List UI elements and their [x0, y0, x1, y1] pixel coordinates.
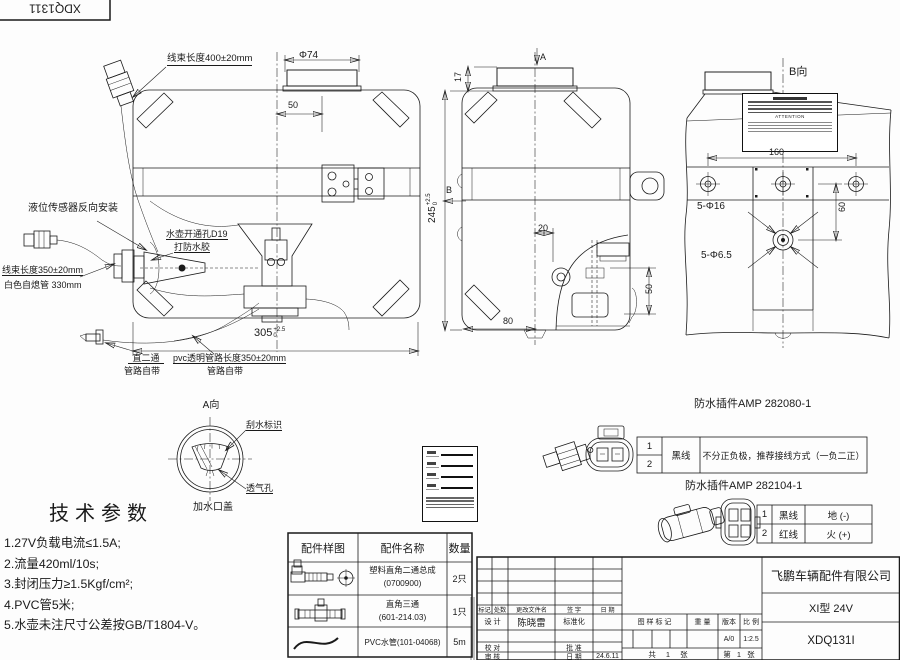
- a-view-title: A向: [196, 400, 226, 411]
- rev-header-sign: 签 字: [555, 604, 593, 614]
- connector2-front-view: [716, 499, 760, 545]
- parts-row2-name2: (601-214.03): [358, 611, 447, 623]
- date-value: 24.6.11: [593, 652, 622, 660]
- standardization-label: 标准化: [555, 614, 593, 630]
- rev-header-date: 日 期: [593, 604, 622, 614]
- connector1-pin2: 2: [637, 455, 662, 473]
- drawing-sheet: ATTENTION XDQ1311 线束长度400±20mm Φ74 50 液位…: [0, 0, 900, 660]
- total-sheets: 共 1 张: [622, 648, 718, 660]
- dim-phi74: Φ74: [299, 50, 318, 61]
- dim-17: 17: [453, 65, 463, 89]
- version-value: A/0: [718, 630, 740, 648]
- parts-header-sample: 配件样图: [288, 533, 358, 562]
- parts-row2-name1: 直角三通: [358, 598, 447, 610]
- dim-50-side: 50: [644, 278, 654, 300]
- parts-row2-qty: 1只: [447, 595, 472, 627]
- connector1-title: 防水插件AMP 282080-1: [694, 398, 811, 410]
- pvc-pipe-note-line2: 管路自带: [207, 366, 243, 376]
- dim-60: 60: [837, 196, 847, 218]
- connector2-row2-pin: 2: [757, 524, 772, 543]
- tank-hole-note-line1: 水壶开通孔D19: [166, 229, 228, 240]
- wiper-mark-label: 刮水标识: [246, 420, 282, 431]
- holes-5-phi6-5: 5-Φ6.5: [701, 250, 732, 261]
- parts-row1-name2: (0700900): [358, 577, 447, 589]
- pvc-pipe-note-line1: pvc透明管路长度350±20mm: [173, 353, 286, 364]
- sensor-plug: [102, 59, 137, 107]
- tech-param-item: 3.封闭压力≥1.5Kgf/cm²;: [4, 574, 206, 595]
- pvc-hose-icon: [294, 638, 338, 649]
- tech-params-list: 1.27V负载电流≤1.5A; 2.流量420ml/10s; 3.封闭压力≥1.…: [4, 533, 206, 636]
- dim-20: 20: [538, 223, 548, 233]
- parts-row3-qty: 5m: [447, 627, 472, 657]
- connector2-row2-role: 火 (+): [805, 524, 872, 543]
- warning-plate: ATTENTION: [742, 93, 838, 152]
- tech-param-item: 5.水壶未注尺寸公差按GB/T1804-V。: [4, 615, 206, 636]
- spec-sticker: [422, 446, 478, 522]
- connector1-side-view: [542, 437, 596, 475]
- dim-80: 80: [503, 316, 513, 326]
- parts-header-qty: 数量: [447, 533, 472, 562]
- connector2-row2-wire: 红线: [772, 524, 805, 543]
- section-label-a: A: [540, 52, 546, 62]
- rev-header-count: 处数: [492, 604, 508, 614]
- design-label: 设 计: [477, 614, 508, 630]
- sheet-code-top: XDQ1311: [24, 1, 86, 14]
- rev-header-file: 更改文件名: [508, 604, 555, 614]
- sheet-number: 第 1 张: [718, 648, 762, 660]
- weight-label: 重 量: [687, 614, 718, 630]
- tank-hole-note-line2: 打防水胶: [174, 242, 210, 253]
- tee-fitting-icon: [295, 599, 345, 621]
- white-tube-note: 白色自熄管 330mm: [4, 280, 82, 290]
- connector1-note: 不分正负极，推荐接线方式（一负二正）: [700, 437, 867, 473]
- connector1-wire: 黑线: [662, 437, 700, 473]
- tech-param-item: 2.流量420ml/10s;: [4, 554, 206, 575]
- drawing-code: XDQ131I: [762, 622, 900, 660]
- stamp-label: 图 样 标 记: [622, 614, 687, 630]
- tech-params-title: 技术参数: [49, 503, 153, 525]
- connector2-row1-wire: 黑线: [772, 505, 805, 524]
- connector1-pin1: 1: [637, 437, 662, 455]
- section-label-b: B: [446, 185, 452, 195]
- connector2-row1-pin: 1: [757, 505, 772, 524]
- designer-name: 陈晓雷: [508, 614, 555, 630]
- connector1-front-view: [586, 426, 633, 471]
- audit-label: 审 核: [477, 652, 508, 660]
- a-view-drawing: [168, 417, 252, 501]
- elbow-note-line2: 管路自带: [124, 366, 160, 376]
- elbow-fitting-icon: [291, 560, 355, 587]
- tech-param-item: 4.PVC管5米;: [4, 595, 206, 616]
- plate-title-line: [773, 97, 807, 100]
- parts-row3-name: PVC水管(101-04068): [358, 627, 447, 657]
- dim-50-front: 50: [288, 100, 298, 110]
- scale-label: 比 例: [740, 614, 762, 630]
- elbow-note-line1: 直二通: [128, 353, 164, 364]
- dim-245: 245+2.50: [422, 173, 440, 223]
- harness-length-left-note: 线束长度350±20mm: [2, 265, 83, 276]
- product-model: XI型 24V: [762, 593, 900, 622]
- connector2-row1-role: 地 (-): [805, 505, 872, 524]
- tech-param-item: 1.27V负载电流≤1.5A;: [4, 533, 206, 554]
- connector2-title: 防水插件AMP 282104-1: [685, 480, 802, 492]
- connector2-side-view: [654, 496, 726, 543]
- parts-row1-name1: 塑料直角二通总成: [358, 564, 447, 576]
- dim-160: 160: [769, 147, 784, 157]
- holes-5-phi16: 5-Φ16: [697, 201, 725, 212]
- rev-header-mark: 标记: [477, 604, 492, 614]
- date-label: 日 期: [555, 652, 593, 660]
- level-sensor-note: 液位传感器反向安装: [28, 203, 118, 214]
- version-label: 版本: [718, 614, 740, 630]
- parts-header-name: 配件名称: [358, 533, 447, 562]
- company-name: 飞鹏车辆配件有限公司: [762, 557, 900, 593]
- b-view-title: B向: [789, 66, 807, 78]
- plate-attention-text: ATTENTION: [748, 115, 832, 120]
- vent-hole-label: 透气孔: [246, 483, 273, 494]
- scale-value: 1:2.5: [740, 630, 762, 648]
- side-view-drawing: [444, 48, 664, 345]
- harness-length-top-note: 线束长度400±20mm: [167, 54, 252, 66]
- parts-row1-qty: 2只: [447, 562, 472, 595]
- filler-cap-label: 加水口盖: [193, 502, 233, 513]
- dim-305: 305 +2.50: [254, 327, 285, 340]
